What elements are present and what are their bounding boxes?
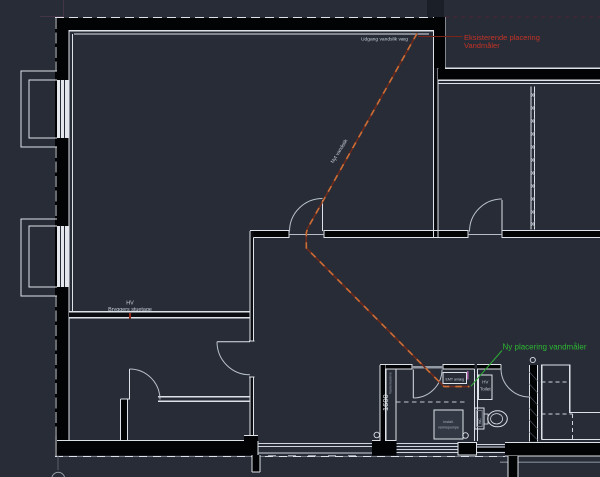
svg-text:EMT anlæg: EMT anlæg <box>446 377 465 381</box>
svg-text:Ny placering vandmåler: Ny placering vandmåler <box>503 343 587 352</box>
svg-text:Udgang vandslik væg: Udgang vandslik væg <box>361 37 408 43</box>
svg-text:Bryggers stuetage: Bryggers stuetage <box>108 307 152 313</box>
svg-text:Install.: Install. <box>443 420 453 424</box>
svg-text:Vaskemaskine: Vaskemaskine <box>389 372 393 394</box>
svg-text:HV: HV <box>482 380 489 385</box>
svg-text:WC: WC <box>478 418 482 424</box>
svg-text:HV: HV <box>126 301 134 307</box>
svg-text:Vandmåler: Vandmåler <box>464 41 500 50</box>
svg-text:1600: 1600 <box>381 394 390 411</box>
svg-text:Toilet: Toilet <box>480 387 491 392</box>
svg-text:varmepumpe: varmepumpe <box>438 426 459 430</box>
